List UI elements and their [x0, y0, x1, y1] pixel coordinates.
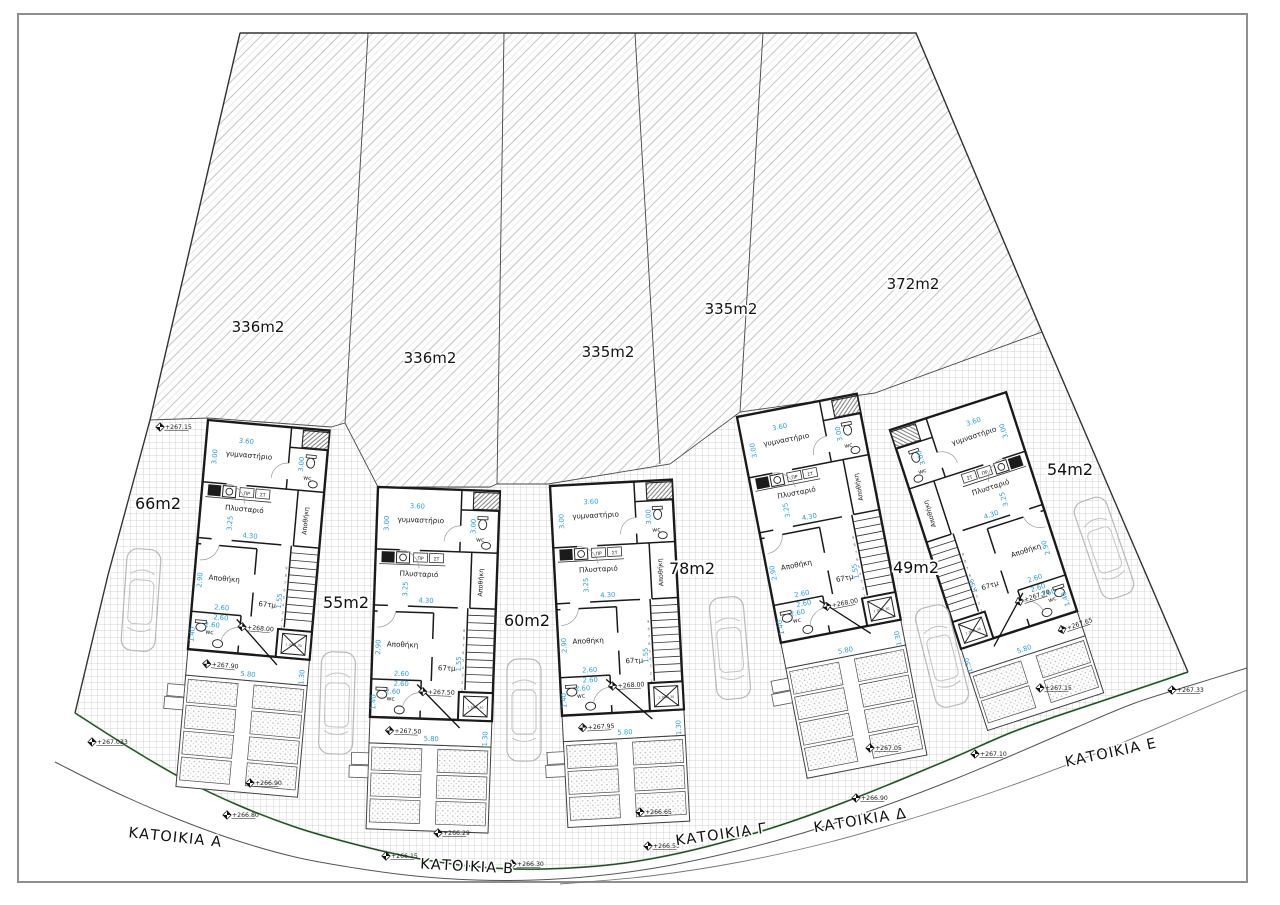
elevation-marker: +266.90 [246, 779, 282, 787]
elevation-marker: +266.80 [223, 811, 259, 819]
room-wc-top: wc [476, 536, 484, 543]
stair-number: 8 [284, 573, 287, 577]
stair-number: 3 [281, 610, 284, 614]
washer-tag-pr: ΠΡ [243, 491, 250, 498]
stair-number: 6 [283, 588, 286, 592]
dim-garden-side: 1.30 [297, 669, 306, 685]
elevation-marker: +267.15 [1036, 684, 1072, 692]
stair-number: 3 [649, 664, 651, 668]
room-gym: γυμναστήριο [397, 515, 444, 526]
site-plan-drawing: 3.603.00γυμναστήριο3.00wcΠΡΣΤΠλυσταριό3.… [0, 0, 1280, 905]
house-name-label: ΚΑΤΟΙΚΙΑ A [128, 825, 223, 851]
dim-laundry-height: 3.25 [401, 581, 410, 596]
floor-area-label: 67τμ [625, 656, 644, 665]
room-wc-top: wc [652, 526, 661, 533]
dim-wc-height: 1.40 [369, 694, 378, 709]
washer-tag-st: ΣΤ [434, 556, 440, 562]
yard-area-label: 54m2 [1047, 460, 1093, 479]
dim-wc-column: 3.00 [644, 509, 653, 525]
dim-gym-height: 3.00 [210, 449, 219, 465]
stair-number: 4 [282, 603, 285, 607]
dim-wc-height: 1.40 [188, 627, 197, 643]
dim-gym-height: 3.00 [557, 514, 566, 530]
dim-gym-width: 3.60 [583, 497, 599, 506]
dim-storage-width: 2.60 [214, 603, 230, 612]
elevation-value: +267.15 [165, 424, 192, 431]
elevation-value: +267.10 [980, 751, 1007, 758]
elevation-marker: +267.10 [971, 750, 1007, 758]
elevation-value: +266.90 [255, 780, 282, 787]
washer-tag-pr: ΠΡ [417, 556, 424, 562]
elevation-marker: +267.05 [866, 744, 902, 752]
plot-area-label: 335m2 [705, 300, 758, 318]
washer-tag-st: ΣΤ [260, 492, 266, 498]
elevation-marker: +267.033 [88, 738, 128, 746]
elevation-value: +266.29 [443, 830, 470, 837]
yard-area-label: 49m2 [893, 558, 939, 577]
dim-laundry-width: 4.30 [418, 596, 433, 605]
yard-area-label: 66m2 [135, 494, 181, 513]
plan-layers: 3.603.00γυμναστήριο3.00wcΠΡΣΤΠλυσταριό3.… [18, 14, 1247, 884]
house-name-label: ΚΑΤΟΙΚΙΑ E [1064, 736, 1159, 771]
plot-area-label: 335m2 [582, 343, 635, 361]
stair-number: 4 [462, 666, 464, 670]
dim-gym-height: 3.00 [382, 516, 391, 531]
stair-number: 5 [283, 596, 286, 600]
dim-storage-height: 2.90 [560, 638, 569, 654]
yard-area-label: 78m2 [669, 559, 715, 578]
stair-number: 7 [648, 635, 650, 639]
stair-number: 2 [650, 672, 652, 676]
dim-storage-height: 2.90 [374, 639, 383, 654]
stair-number: 5 [462, 658, 464, 662]
elevation-value: +267.033 [97, 739, 128, 746]
yard-area-label: 60m2 [504, 611, 550, 630]
elevation-value: +266.80 [232, 812, 259, 819]
room-closet: Αποθήκη [476, 569, 485, 597]
elevation-marker: +266.90 [852, 794, 888, 802]
room-wc-top: wc [303, 475, 312, 483]
washer-tag-st: ΣΤ [612, 550, 618, 556]
dim-terrace-width: 5.80 [617, 728, 633, 737]
elevation-value: +266.15 [391, 853, 418, 860]
elevation-marker: +267.33 [1168, 686, 1204, 694]
washer-tag-pr: ΠΡ [595, 551, 602, 557]
stair-number: 4 [649, 657, 651, 661]
stair-number: 1 [280, 625, 283, 629]
dim-wc-width: 2.60 [582, 676, 598, 685]
room-wc-bottom: wc [205, 629, 214, 637]
plot-area-label: 336m2 [232, 318, 285, 336]
stair-number: 8 [463, 636, 465, 640]
dim-wc-column: 3.00 [297, 456, 306, 472]
dim-storage-height: 2.90 [195, 572, 204, 588]
elevation-value: +267.05 [875, 745, 902, 752]
room-closet: Αποθήκη [656, 558, 665, 586]
stair-number: 7 [284, 581, 287, 585]
stair-number: 8 [647, 627, 649, 631]
elevation-value: +266.90 [861, 795, 888, 802]
stair-number: 6 [648, 642, 650, 646]
dim-gym-width: 3.60 [238, 437, 254, 446]
dim-storage-width: 2.60 [394, 670, 409, 679]
yard-area-label: 55m2 [323, 593, 369, 612]
stair-number: 1 [650, 679, 652, 683]
room-storage: Αποθήκη [387, 639, 419, 649]
stair-number: 9 [463, 629, 465, 633]
elevator-size-label: 1.30x1.30 [467, 705, 483, 710]
stair-number: 6 [462, 651, 464, 655]
elevation-value: +267.33 [1177, 687, 1204, 694]
dim-wc-height: 1.40 [560, 693, 569, 709]
dim-storage-width: 2.60 [582, 666, 598, 675]
elevation-marker: +266.15 [382, 852, 418, 860]
site-plan-page: 3.603.00γυμναστήριο3.00wcΠΡΣΤΠλυσταριό3.… [0, 0, 1280, 905]
elevation-value: +266.30 [517, 861, 544, 868]
stair-number: 2 [461, 681, 463, 685]
stair-number: 7 [462, 644, 464, 648]
plot-area-label: 372m2 [887, 275, 940, 293]
dim-laundry-height: 3.25 [582, 577, 591, 593]
house-name-label: ΚΑΤΟΙΚΙΑ Δ [813, 806, 909, 837]
stair-number: 9 [647, 620, 649, 624]
stair-number: 5 [649, 649, 651, 653]
elevation-value: +267.15 [1045, 685, 1072, 692]
stair-number: 2 [281, 618, 284, 622]
elevation-marker: +267.15 [156, 423, 192, 431]
dim-terrace-width: 5.80 [424, 735, 439, 744]
room-wc-bottom: wc [386, 695, 394, 702]
elevation-marker: +266.29 [434, 829, 470, 837]
dim-garden-side: 1.30 [481, 731, 490, 746]
floor-area-label: 67τμ [438, 664, 456, 673]
elevation-marker: +266.50 [644, 842, 680, 850]
room-wc-bottom: wc [577, 692, 586, 699]
plot-area-label: 336m2 [404, 349, 457, 367]
dim-gym-width: 3.60 [410, 502, 425, 511]
dim-wc-column: 3.00 [469, 519, 478, 534]
elevation-marker: +266.65 [636, 808, 672, 816]
dim-laundry-width: 4.30 [600, 591, 616, 600]
dim-laundry-width: 4.30 [242, 531, 258, 540]
dim-garden-side: 1.30 [674, 720, 683, 736]
room-laundry: Πλυσταριό [399, 569, 438, 579]
dim-terrace-width: 5.80 [240, 670, 256, 679]
room-storage: Αποθήκη [572, 635, 604, 646]
elevation-value: +266.65 [645, 809, 672, 816]
stair-number: 1 [461, 688, 463, 692]
stair-number: 3 [461, 673, 463, 677]
stair-number: 9 [285, 566, 288, 570]
dim-laundry-height: 3.25 [225, 515, 234, 531]
elevator-size-label: 1.30x1.30 [658, 695, 674, 700]
